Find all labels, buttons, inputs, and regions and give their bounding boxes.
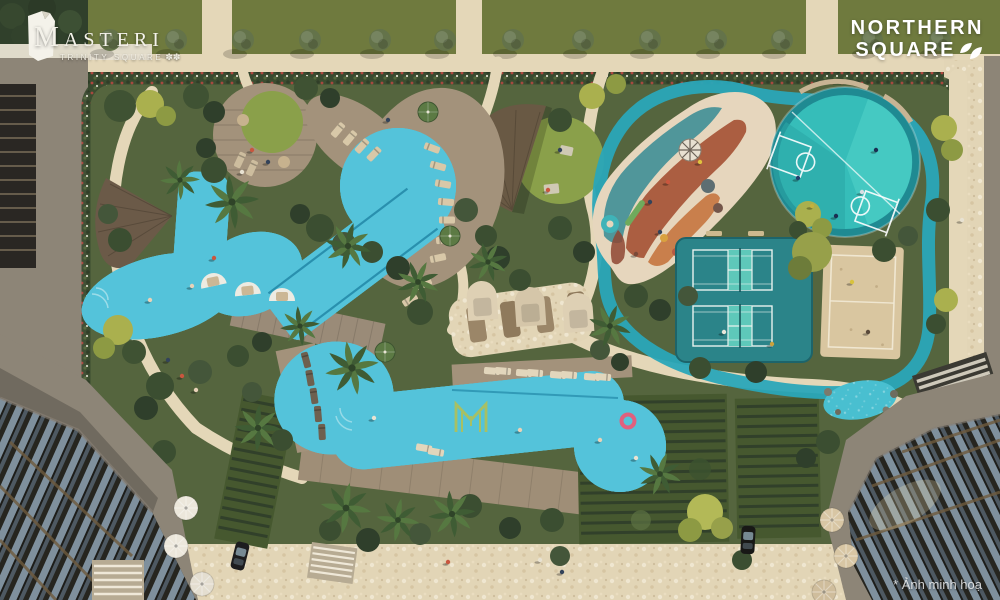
- court-bench: [706, 231, 722, 236]
- illustration-caption: * Ảnh minh hoạ: [893, 577, 982, 592]
- parasol: [418, 102, 438, 122]
- northern-line1: NORTHERN: [851, 18, 984, 39]
- parasol: [440, 226, 460, 246]
- parasol: [375, 342, 395, 362]
- carousel: [679, 139, 701, 161]
- masterplan-rendering: MASTERI TRINITY SQUARE✽✽ NORTHERN SQUARE…: [0, 0, 1000, 600]
- tower-west-edge: [0, 84, 36, 268]
- sand-court: [820, 245, 904, 360]
- leaf-icon: [958, 39, 984, 61]
- play-dome: [701, 179, 715, 193]
- court-bench: [748, 231, 764, 236]
- masteri-logo: MASTERI TRINITY SQUARE✽✽: [22, 6, 192, 70]
- pergola-east-small: [735, 397, 821, 538]
- masteri-wordmark: MASTERI: [34, 22, 164, 54]
- flower-icon: ✽✽: [165, 52, 180, 62]
- play-dome: [713, 203, 723, 213]
- stairs-south: [307, 542, 358, 584]
- site-plan-rendering: [0, 0, 1000, 600]
- northern-line2: SQUARE: [855, 40, 956, 61]
- stairs-southwest: [92, 560, 144, 600]
- northern-square-logo: NORTHERN SQUARE: [851, 18, 984, 61]
- car: [740, 526, 755, 555]
- masteri-subtitle: TRINITY SQUARE✽✽: [60, 52, 180, 63]
